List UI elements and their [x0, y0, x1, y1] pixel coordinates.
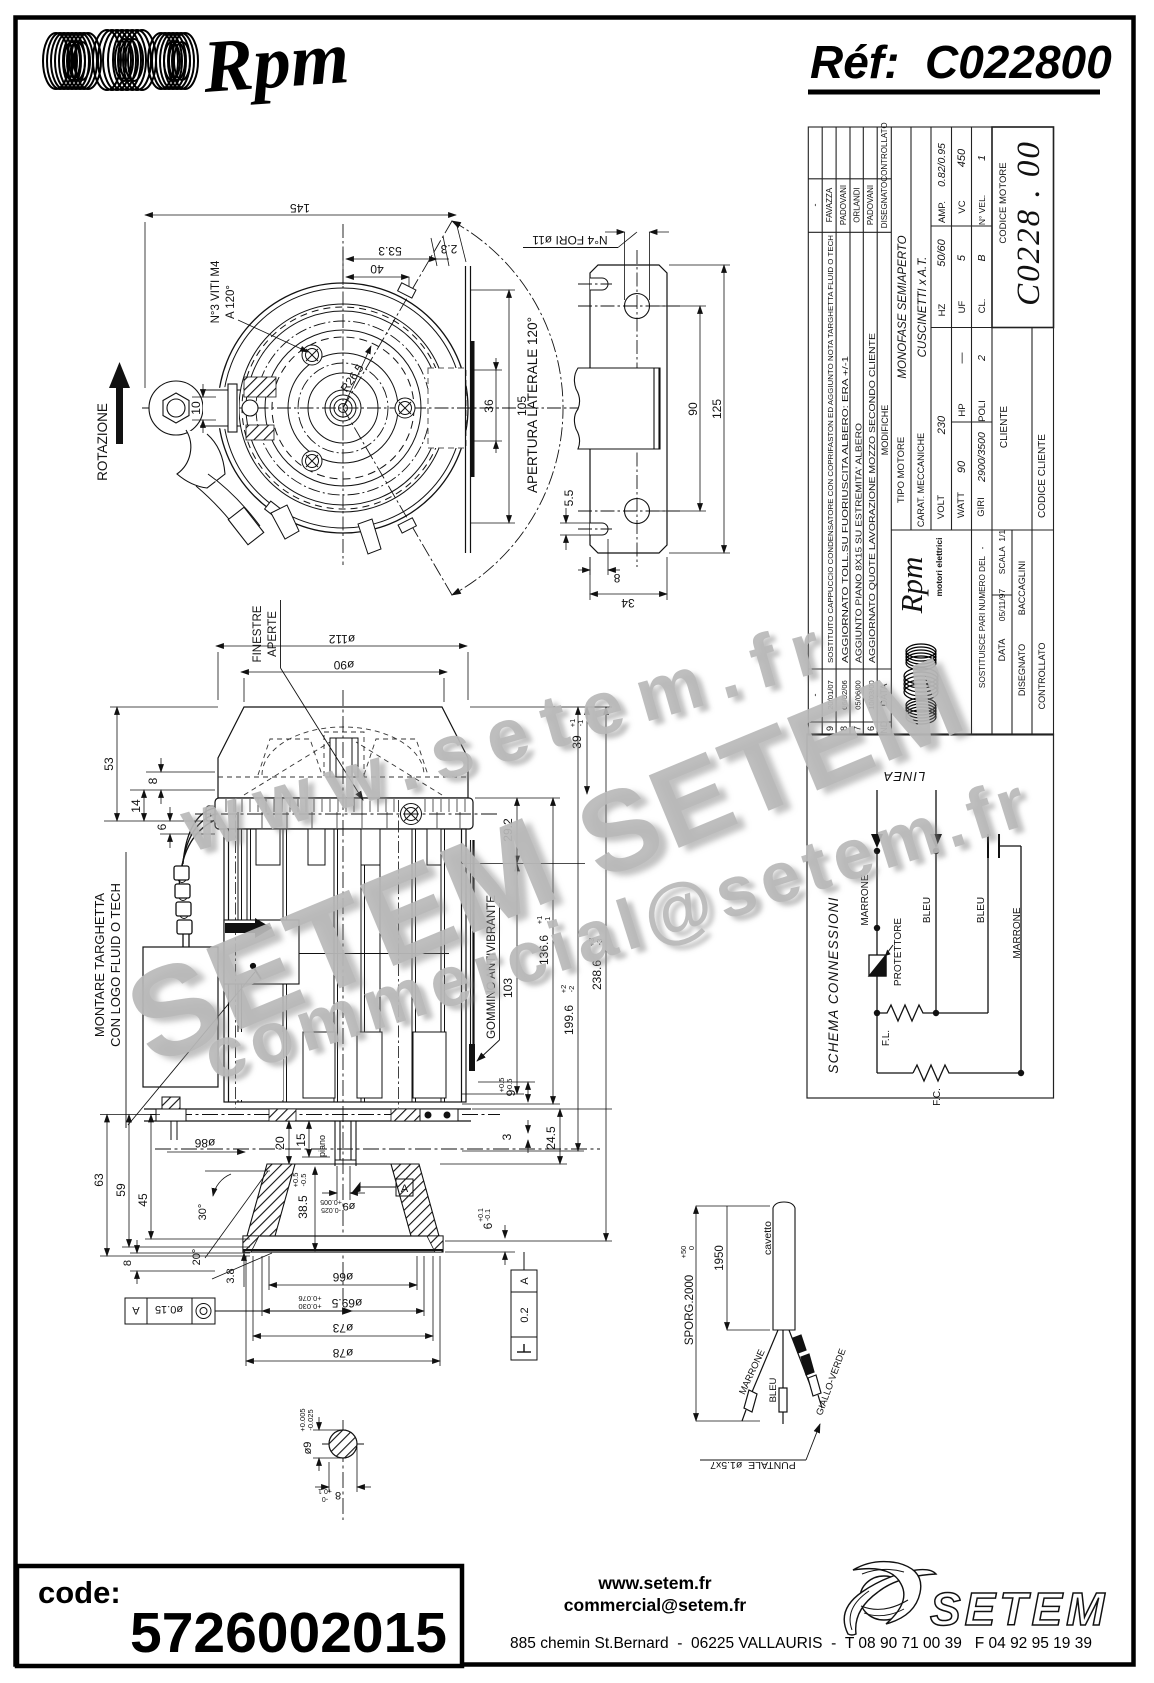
svg-text:code:: code:: [38, 1575, 121, 1610]
svg-text:commercial@setem.fr: commercial@setem.fr: [564, 1595, 747, 1615]
svg-text:SETEM: SETEM: [930, 1583, 1108, 1635]
svg-text:885 chemin St.Bernard - 0622: 885 chemin St.Bernard - 06225 VALLAURIS …: [510, 1635, 1092, 1652]
svg-text:www.setem.fr: www.setem.fr: [597, 1573, 711, 1593]
svg-text:5726002015: 5726002015: [130, 1601, 447, 1665]
